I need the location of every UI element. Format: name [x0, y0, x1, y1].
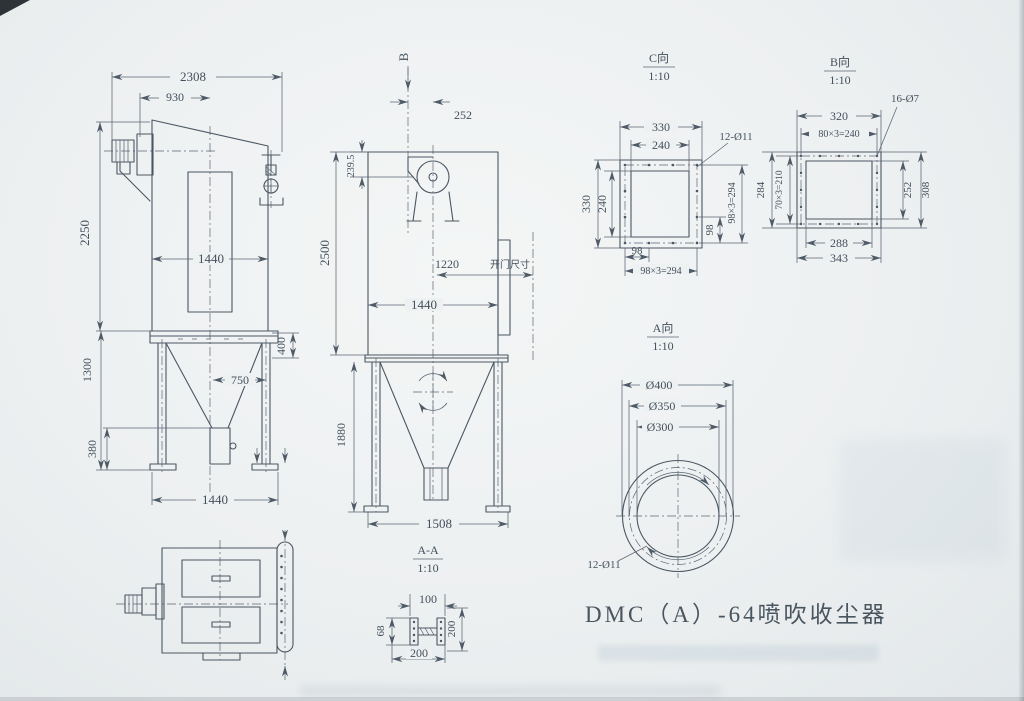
door-note: 开门尺寸: [490, 258, 530, 271]
dim-frame-height-side: 1880: [334, 423, 348, 447]
dim-c-height-inner: 240: [595, 195, 609, 213]
dim-b-height-outer: 284: [755, 181, 767, 198]
view-a-holes: 12-Ø11: [587, 559, 620, 571]
dim-fan-offset: 930: [166, 90, 184, 104]
view-c-scale: 1:10: [648, 69, 669, 83]
dim-base-width-side: 1508: [426, 516, 452, 531]
dim-aa-flange-width: 100: [419, 592, 437, 606]
flange-view-b: B向 1:10 320 80×3=240 16-Ø7 284 70×3=210 …: [755, 54, 932, 265]
dim-outlet-height: 380: [85, 440, 99, 458]
bolt-holes: [800, 155, 878, 225]
bolt-holes: [624, 164, 699, 245]
dim-b-flange-height: 308: [920, 181, 932, 198]
dim-b-span-v: 70×3=210: [775, 170, 785, 209]
dim-aa-height: 200: [446, 620, 458, 637]
dim-door-swing: 1220: [435, 257, 459, 271]
dim-aa-beam-depth: 68: [375, 625, 387, 637]
dim-b-flange-width: 343: [830, 251, 848, 265]
dim-b-span-h: 80×3=240: [818, 129, 859, 140]
dim-overall-width: 2308: [180, 69, 206, 84]
section-aa-label: A-A: [417, 543, 439, 557]
plan-view: [116, 530, 293, 680]
bolt-holes: [413, 621, 442, 642]
dim-a-bore: Ø300: [647, 420, 674, 434]
dim-aa-width: 200: [410, 646, 428, 660]
dim-b-opening-width: 288: [830, 236, 848, 250]
drawing-title: DMC（A）-64喷吹收尘器: [585, 602, 888, 627]
dim-body-height-side: 2500: [317, 240, 332, 266]
dim-body-width: 1440: [198, 251, 224, 266]
section-a-a: A-A 1:10 100 68 200 200: [375, 543, 468, 663]
dim-c-height-outer: 330: [579, 195, 593, 213]
dim-base-width: 1440: [202, 492, 228, 507]
section-aa-scale: 1:10: [417, 561, 438, 575]
dim-fan-drop: 239.5: [346, 155, 357, 178]
dim-body-width-side: 1440: [411, 297, 437, 312]
side-elevation-view: B 252 239.5 2500 1220 开门尺寸 1440 1880 150…: [317, 52, 533, 531]
dim-outlet-offset: 252: [454, 108, 472, 122]
dim-c-pitch-v: 98: [704, 224, 716, 236]
dim-body-height: 2250: [77, 220, 92, 246]
engineering-drawing-canvas: 2308 930 2250 1300 380 1440 750 400 1440…: [0, 0, 1024, 701]
flange-view-c: C向 1:10 330 240 12-Ø11 330 240 98 98×3=2…: [579, 50, 753, 277]
view-b-holes: 16-Ø7: [891, 93, 920, 105]
front-elevation-view: 2308 930 2250 1300 380 1440 750 400 1440: [77, 69, 299, 507]
view-c-label: C向: [649, 50, 669, 65]
bolt-holes: [280, 555, 283, 635]
dim-c-span-v: 98×3=294: [727, 182, 738, 223]
dim-a-bolt-circle: Ø350: [649, 399, 676, 413]
view-b-label: B向: [830, 54, 850, 69]
view-c-holes: 12-Ø11: [719, 131, 752, 143]
view-a-scale: 1:10: [652, 339, 673, 353]
dim-frame-height: 1300: [80, 358, 94, 382]
dim-hopper-offset: 750: [231, 373, 249, 387]
view-a-label: A向: [653, 320, 674, 335]
dim-b-opening-height: 252: [902, 182, 914, 199]
flange-view-a: A向 1:10 Ø400 Ø350 Ø300 12-Ø11: [587, 320, 740, 578]
dim-b-width-outer: 320: [830, 109, 848, 123]
dim-a-flange-od: Ø400: [646, 378, 673, 392]
dim-c-width-outer: 330: [652, 120, 670, 134]
dim-c-pitch-h: 98: [632, 245, 644, 257]
section-b-label: B: [396, 52, 411, 61]
view-b-scale: 1:10: [829, 73, 850, 87]
dim-beam-depth: 400: [274, 337, 288, 355]
dim-c-span-h: 98×3=294: [640, 266, 681, 277]
dim-c-width-inner: 240: [652, 138, 670, 152]
